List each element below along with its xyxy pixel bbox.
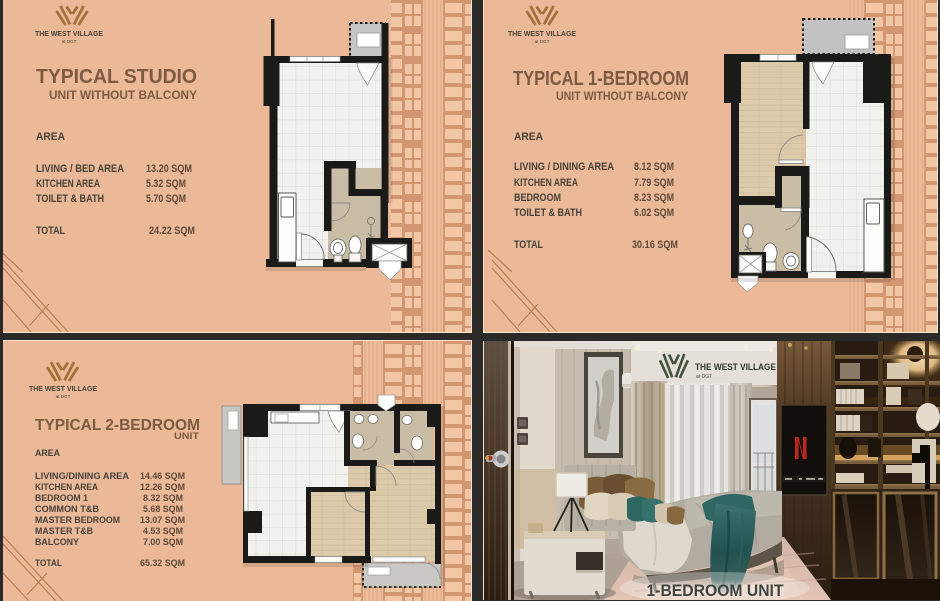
- svg-text:7.00 SQM: 7.00 SQM: [143, 537, 183, 548]
- svg-text:at DGT: at DGT: [62, 39, 77, 44]
- svg-text:LIVING / BED AREA: LIVING / BED AREA: [36, 163, 124, 175]
- svg-text:LIVING/DINING AREA: LIVING/DINING AREA: [35, 471, 129, 482]
- svg-text:MASTER BEDROOM: MASTER BEDROOM: [35, 515, 120, 526]
- svg-text:30.16 SQM: 30.16 SQM: [632, 239, 678, 251]
- svg-text:14.46 SQM: 14.46 SQM: [140, 471, 185, 482]
- svg-text:TOTAL: TOTAL: [36, 225, 65, 237]
- svg-text:TOILET & BATH: TOILET & BATH: [514, 207, 582, 219]
- svg-text:BALCONY: BALCONY: [35, 537, 80, 548]
- svg-text:5.68 SQM: 5.68 SQM: [143, 504, 183, 515]
- svg-text:THE WEST VILLAGE: THE WEST VILLAGE: [29, 384, 97, 393]
- svg-text:UNIT WITHOUT BALCONY: UNIT WITHOUT BALCONY: [49, 90, 197, 102]
- svg-text:MASTER T&B: MASTER T&B: [35, 526, 93, 537]
- svg-text:4.53 SQM: 4.53 SQM: [143, 526, 183, 537]
- svg-text:AREA: AREA: [35, 448, 60, 459]
- svg-text:8.32 SQM: 8.32 SQM: [143, 493, 183, 504]
- svg-text:LIVING / DINING AREA: LIVING / DINING AREA: [514, 161, 614, 173]
- svg-text:24.22 SQM: 24.22 SQM: [149, 225, 195, 237]
- svg-text:TOTAL: TOTAL: [514, 239, 543, 251]
- svg-text:13.20 SQM: 13.20 SQM: [146, 163, 192, 175]
- svg-text:8.23 SQM: 8.23 SQM: [634, 192, 674, 204]
- svg-text:TYPICAL 1-BEDROOM: TYPICAL 1-BEDROOM: [513, 68, 689, 90]
- svg-text:TOILET & BATH: TOILET & BATH: [36, 193, 104, 205]
- svg-text:UNIT WITHOUT BALCONY: UNIT WITHOUT BALCONY: [556, 91, 688, 103]
- svg-text:8.12 SQM: 8.12 SQM: [634, 161, 674, 173]
- svg-text:UNIT: UNIT: [174, 431, 199, 442]
- svg-text:AREA: AREA: [514, 131, 543, 143]
- svg-text:AREA: AREA: [36, 131, 65, 143]
- svg-text:KITCHEN AREA: KITCHEN AREA: [514, 177, 578, 189]
- svg-text:TOTAL: TOTAL: [35, 558, 62, 569]
- svg-text:THE WEST VILLAGE: THE WEST VILLAGE: [35, 29, 103, 38]
- svg-text:TYPICAL STUDIO: TYPICAL STUDIO: [36, 66, 197, 88]
- svg-text:12.26 SQM: 12.26 SQM: [140, 482, 185, 493]
- svg-text:BEDROOM 1: BEDROOM 1: [35, 493, 89, 504]
- svg-text:COMMON T&B: COMMON T&B: [35, 504, 99, 515]
- svg-text:at DGT: at DGT: [56, 394, 71, 399]
- svg-text:65.32 SQM: 65.32 SQM: [140, 558, 185, 569]
- svg-text:5.70 SQM: 5.70 SQM: [146, 193, 186, 205]
- svg-text:5.32 SQM: 5.32 SQM: [146, 178, 186, 190]
- svg-text:KITCHEN AREA: KITCHEN AREA: [35, 482, 98, 493]
- svg-text:13.07 SQM: 13.07 SQM: [140, 515, 185, 526]
- svg-text:1-BEDROOM UNIT: 1-BEDROOM UNIT: [647, 581, 785, 600]
- svg-text:6.02 SQM: 6.02 SQM: [634, 207, 674, 219]
- svg-text:BEDROOM: BEDROOM: [514, 192, 561, 204]
- svg-text:KITCHEN AREA: KITCHEN AREA: [36, 178, 100, 190]
- svg-text:7.79 SQM: 7.79 SQM: [634, 177, 674, 189]
- svg-text:at DGT: at DGT: [696, 374, 712, 380]
- svg-text:at DGT: at DGT: [535, 39, 550, 44]
- svg-text:THE WEST VILLAGE: THE WEST VILLAGE: [695, 362, 776, 373]
- svg-text:THE WEST VILLAGE: THE WEST VILLAGE: [508, 29, 576, 38]
